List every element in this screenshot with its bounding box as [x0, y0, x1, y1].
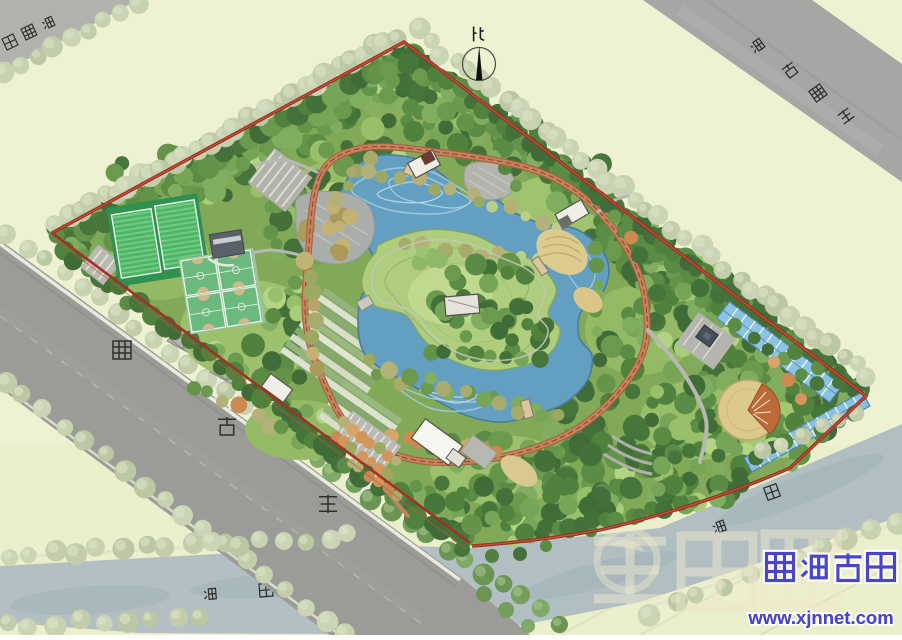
svg-text:www.xjnnet.com: www.xjnnet.com [747, 607, 893, 628]
